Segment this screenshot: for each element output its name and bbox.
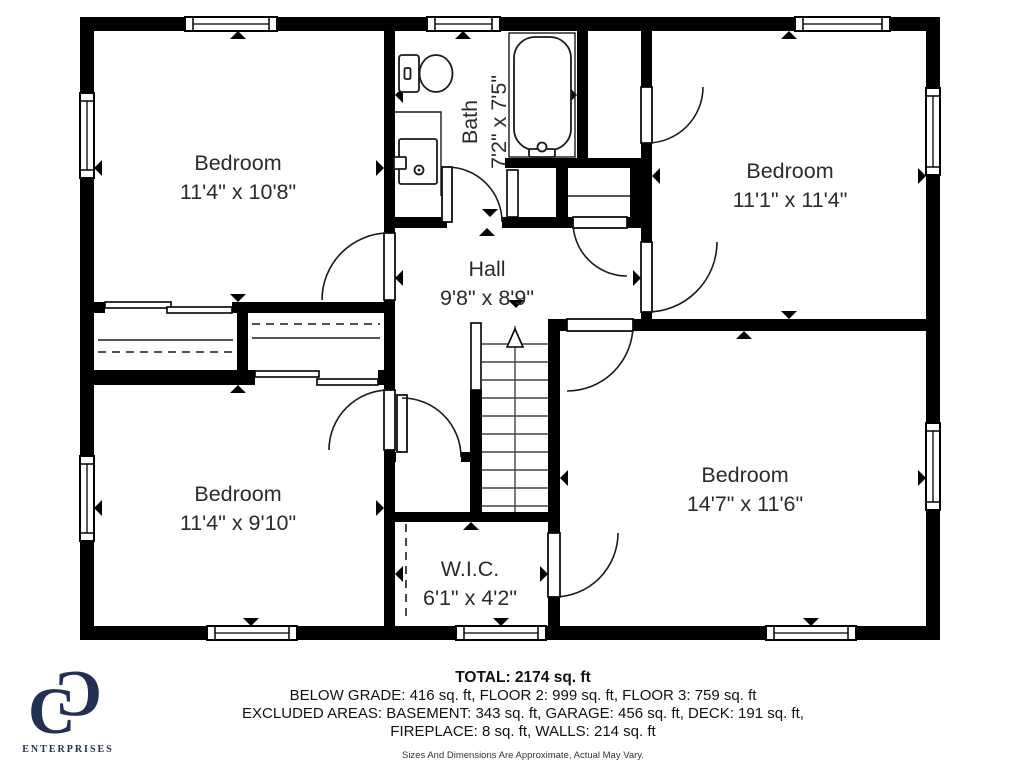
door-bath-leaf bbox=[442, 167, 452, 222]
dimension-marker bbox=[463, 522, 479, 530]
floor-plan-canvas: Bedroom 11'4" x 10'8" Bath 7'2" x 7'5" B… bbox=[0, 0, 1024, 768]
door-closet-top-right-leaf bbox=[641, 87, 652, 143]
room-dims-bedroom-top-left: 11'4" x 10'8" bbox=[180, 180, 296, 204]
door-hall-closet-leaf bbox=[573, 217, 627, 228]
room-dims-bath: 7'2" x 7'5" bbox=[487, 75, 511, 169]
dimension-marker bbox=[781, 31, 797, 39]
dimension-marker bbox=[376, 160, 384, 176]
disclaimer-text: Sizes And Dimensions Are Approximate, Ac… bbox=[402, 750, 644, 761]
company-logo: C C ENTERPRISES bbox=[22, 657, 113, 755]
door-bath-swing-arc bbox=[447, 167, 502, 222]
dimension-marker bbox=[479, 228, 495, 236]
staircase bbox=[471, 323, 548, 512]
door-hall-lower-closet-leaf bbox=[397, 395, 407, 452]
dimension-marker bbox=[803, 618, 819, 626]
dimension-marker bbox=[230, 385, 246, 393]
stair-rail bbox=[471, 323, 481, 390]
dimension-marker bbox=[230, 294, 246, 302]
sliding-closet-door bbox=[105, 302, 171, 308]
room-label-bedroom-bottom-left: Bedroom bbox=[194, 482, 281, 506]
room-label-wic: W.I.C. bbox=[441, 557, 500, 581]
sink-vanity-icon bbox=[394, 112, 441, 196]
dimension-marker bbox=[560, 470, 568, 486]
door-bedroom-top-left-swing-arc bbox=[322, 233, 389, 300]
dimension-marker bbox=[94, 160, 102, 176]
door-wic-swing-arc bbox=[554, 533, 618, 597]
door-wic-leaf bbox=[548, 533, 560, 597]
room-label-hall: Hall bbox=[468, 257, 505, 281]
room-dims-hall: 9'8" x 8'9" bbox=[440, 286, 534, 310]
floor-areas-text: BELOW GRADE: 416 sq. ft, FLOOR 2: 999 sq… bbox=[290, 687, 758, 704]
linen-closet-panel bbox=[507, 170, 518, 217]
door-bedroom-top-right-swing-arc bbox=[647, 242, 717, 312]
logo-monogram-right: C bbox=[54, 657, 102, 730]
dimension-marker bbox=[736, 331, 752, 339]
room-label-bedroom-top-left: Bedroom bbox=[194, 151, 281, 175]
room-label-bedroom-top-right: Bedroom bbox=[746, 159, 833, 183]
excluded-areas-text2: FIREPLACE: 8 sq. ft, WALLS: 214 sq. ft bbox=[390, 723, 656, 740]
dimension-marker bbox=[633, 270, 641, 286]
dimension-marker bbox=[918, 168, 926, 184]
dimension-marker bbox=[781, 311, 797, 319]
dimension-marker bbox=[455, 31, 471, 39]
door-bedroom-bottom-right-leaf bbox=[567, 319, 633, 331]
door-bedroom-bottom-left-leaf bbox=[384, 390, 395, 450]
logo-enterprises-text: ENTERPRISES bbox=[22, 744, 113, 755]
footer-summary: TOTAL: 2174 sq. ft BELOW GRADE: 416 sq. … bbox=[242, 669, 804, 761]
dimension-marker bbox=[376, 500, 384, 516]
toilet-icon bbox=[399, 55, 453, 92]
floor-plan-page: Bedroom 11'4" x 10'8" Bath 7'2" x 7'5" B… bbox=[0, 0, 1024, 768]
dimension-marker bbox=[230, 31, 246, 39]
stair-up-arrow-icon bbox=[507, 329, 523, 347]
dimension-marker bbox=[493, 618, 509, 626]
room-dims-bedroom-bottom-right: 14'7" x 11'6" bbox=[687, 492, 803, 516]
bath-fixtures bbox=[394, 33, 575, 196]
dimension-marker bbox=[94, 500, 102, 516]
dimension-marker bbox=[540, 566, 548, 582]
door-bedroom-bottom-right-swing-arc bbox=[567, 325, 633, 391]
excluded-areas-text: EXCLUDED AREAS: BASEMENT: 343 sq. ft, GA… bbox=[242, 705, 804, 722]
room-dims-bedroom-bottom-left: 11'4" x 9'10" bbox=[180, 511, 296, 535]
door-bedroom-bottom-left-swing-arc bbox=[329, 390, 389, 450]
sliding-closet-door bbox=[255, 371, 319, 377]
door-bedroom-top-right-leaf bbox=[641, 242, 652, 312]
bathtub-icon bbox=[509, 33, 575, 157]
total-area-text: TOTAL: 2174 sq. ft bbox=[455, 669, 591, 686]
door-hall-lower-closet-swing-arc bbox=[402, 398, 461, 457]
door-hall-closet-swing-arc bbox=[573, 222, 627, 276]
sliding-closet-door bbox=[317, 379, 378, 385]
dimension-marker bbox=[395, 270, 403, 286]
room-dims-wic: 6'1" x 4'2" bbox=[423, 586, 517, 610]
room-label-bedroom-bottom-right: Bedroom bbox=[701, 463, 788, 487]
dimension-marker bbox=[395, 566, 403, 582]
dimension-marker bbox=[243, 618, 259, 626]
dimension-marker bbox=[918, 470, 926, 486]
dimension-marker bbox=[482, 209, 498, 217]
door-closet-top-right-swing-arc bbox=[647, 87, 703, 143]
room-label-bath: Bath bbox=[458, 100, 482, 144]
sliding-closet-door bbox=[167, 307, 232, 313]
room-dims-bedroom-top-right: 11'1" x 11'4" bbox=[733, 188, 848, 212]
door-bedroom-top-left-leaf bbox=[384, 233, 395, 300]
dimension-marker bbox=[652, 168, 660, 184]
